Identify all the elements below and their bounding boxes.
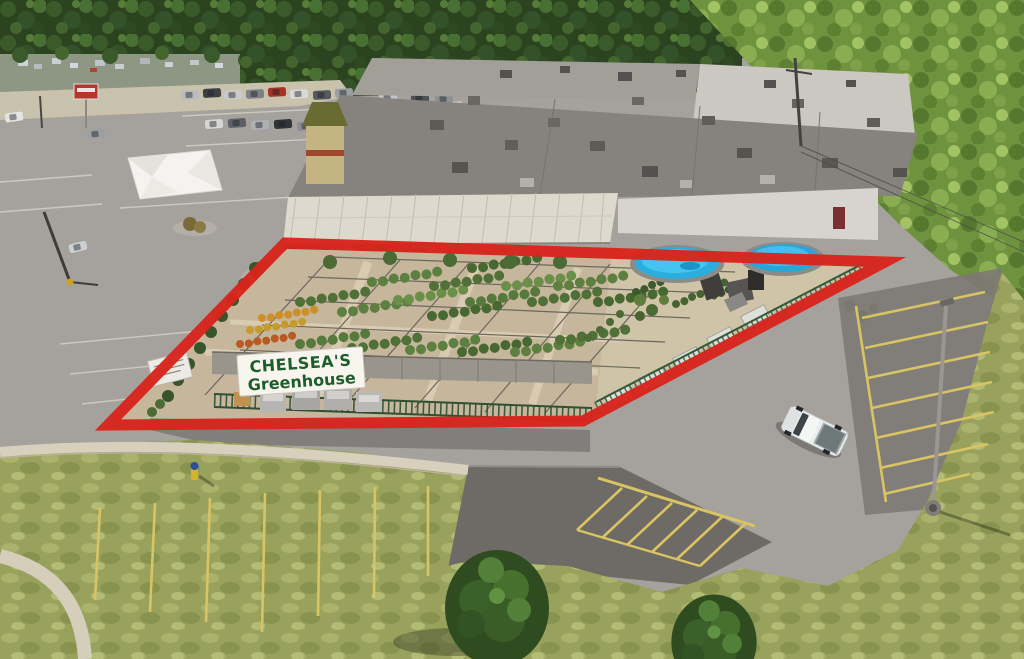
entrance-tower bbox=[302, 102, 348, 184]
chelseas-greenhouse-sign: CHELSEA'S Greenhouse bbox=[237, 347, 366, 397]
event-tent bbox=[128, 150, 222, 199]
building-door bbox=[833, 207, 845, 229]
aerial-photo: CHELSEA'S Greenhouse bbox=[0, 0, 1024, 659]
aerial-photo-canvas: CHELSEA'S Greenhouse bbox=[0, 0, 1024, 659]
